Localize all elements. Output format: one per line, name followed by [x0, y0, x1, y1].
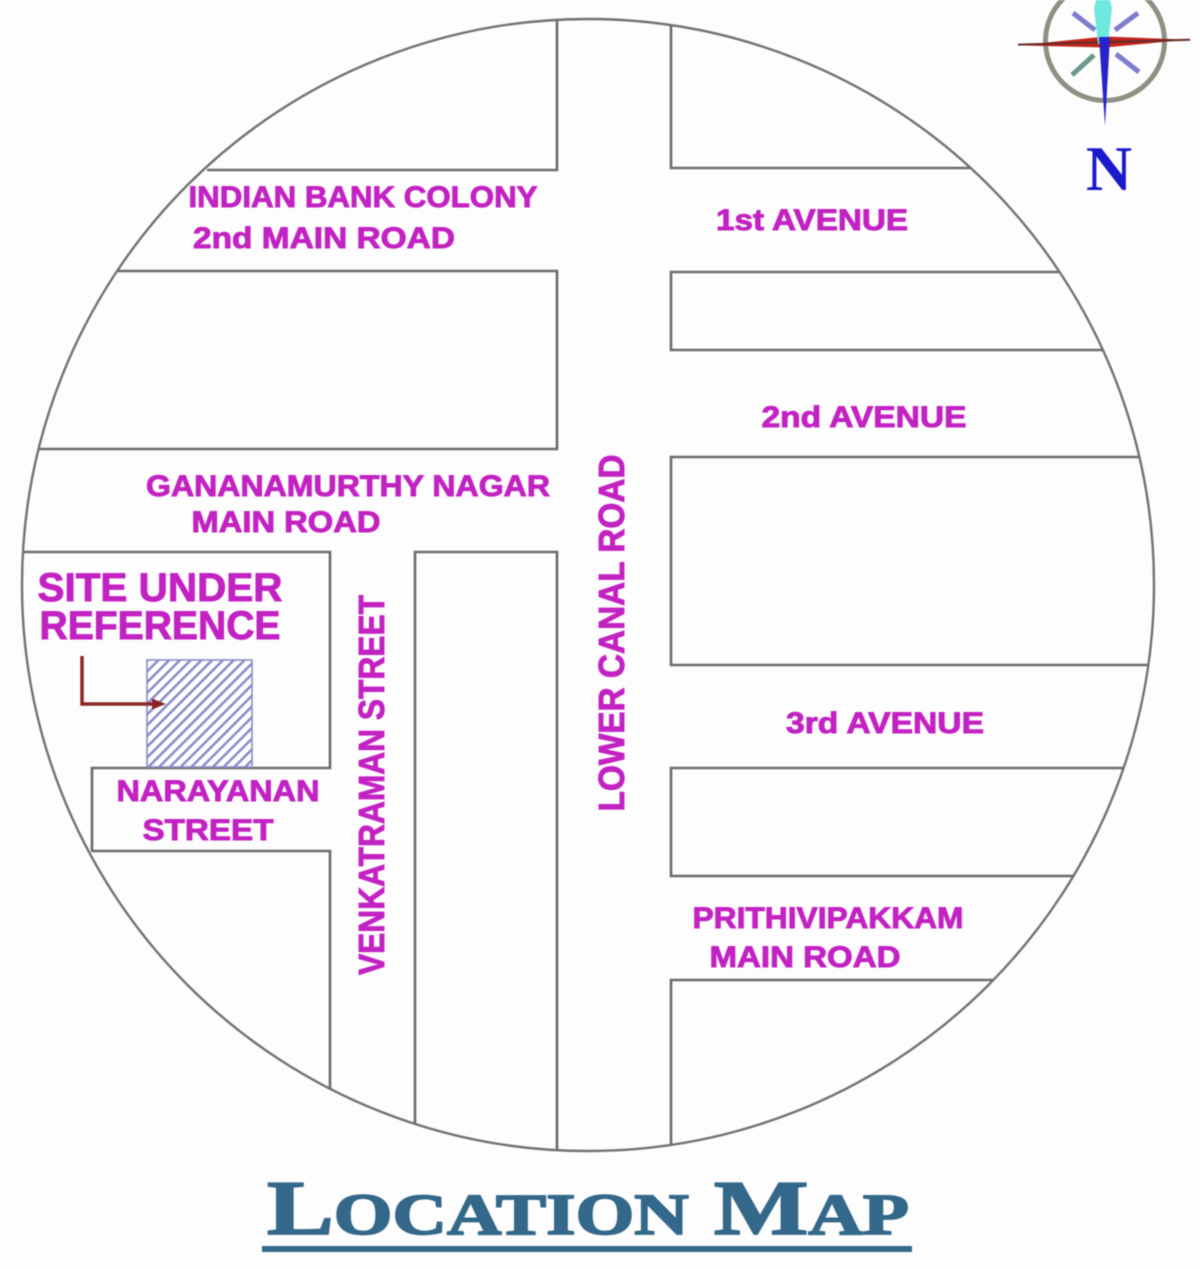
svg-text:REFERENCE: REFERENCE	[40, 604, 281, 648]
svg-text:1st AVENUE: 1st AVENUE	[716, 204, 908, 237]
svg-text:N: N	[1086, 133, 1132, 204]
svg-text:MAIN ROAD: MAIN ROAD	[710, 941, 901, 974]
svg-text:INDIAN BANK COLONY: INDIAN BANK COLONY	[189, 181, 538, 214]
svg-text:STREET: STREET	[143, 814, 274, 847]
svg-text:LOWER CANAL ROAD: LOWER CANAL ROAD	[591, 455, 632, 812]
svg-text:GANANAMURTHY NAGAR: GANANAMURTHY NAGAR	[146, 470, 550, 503]
svg-text:LOCATION MAP: LOCATION MAP	[267, 1165, 909, 1251]
svg-text:2nd MAIN ROAD: 2nd MAIN ROAD	[193, 222, 455, 255]
svg-text:NARAYANAN: NARAYANAN	[117, 775, 320, 808]
svg-text:2nd AVENUE: 2nd AVENUE	[762, 401, 967, 434]
svg-text:VENKATRAMAN STREET: VENKATRAMAN STREET	[351, 595, 392, 975]
svg-text:PRITHIVIPAKKAM: PRITHIVIPAKKAM	[693, 902, 964, 935]
svg-text:MAIN ROAD: MAIN ROAD	[192, 506, 381, 539]
svg-text:3rd AVENUE: 3rd AVENUE	[786, 707, 984, 740]
